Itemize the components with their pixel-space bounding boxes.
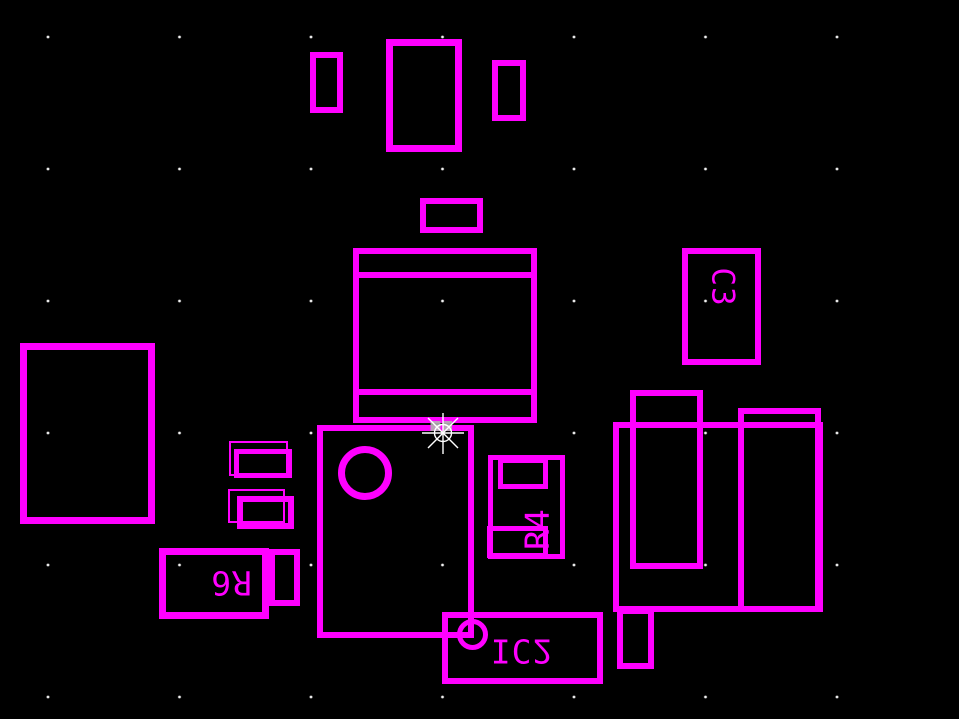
r4-label[interactable]: R4 bbox=[521, 508, 554, 550]
top-cluster-pad-right[interactable] bbox=[492, 60, 526, 121]
r6-label[interactable]: R6 bbox=[210, 567, 252, 600]
small-footprint-b-body[interactable] bbox=[237, 496, 294, 529]
c3-label[interactable]: C3 bbox=[707, 267, 738, 306]
board-canvas[interactable]: R6 R4 IC2 C3 bbox=[0, 0, 959, 719]
crosshair-cursor-icon bbox=[419, 409, 467, 457]
left-component-body[interactable] bbox=[20, 343, 155, 524]
right-component-pad-bottom[interactable] bbox=[617, 608, 654, 669]
right-component-pad-left[interactable] bbox=[630, 390, 703, 569]
r4-pad-top[interactable] bbox=[498, 458, 548, 489]
r6-pad[interactable] bbox=[269, 549, 300, 606]
middle-component-inner-line-top bbox=[356, 272, 534, 278]
top-cluster-pad-left[interactable] bbox=[310, 52, 343, 113]
ic2-label[interactable]: IC2 bbox=[491, 635, 554, 668]
ic2-pin1-circle bbox=[338, 446, 392, 500]
top-cluster-body[interactable] bbox=[386, 39, 462, 152]
small-footprint-a-body[interactable] bbox=[234, 449, 292, 478]
right-component-pad-right[interactable] bbox=[738, 408, 821, 612]
middle-component-inner-line-bottom bbox=[356, 389, 534, 395]
middle-component-tab[interactable] bbox=[420, 198, 483, 233]
